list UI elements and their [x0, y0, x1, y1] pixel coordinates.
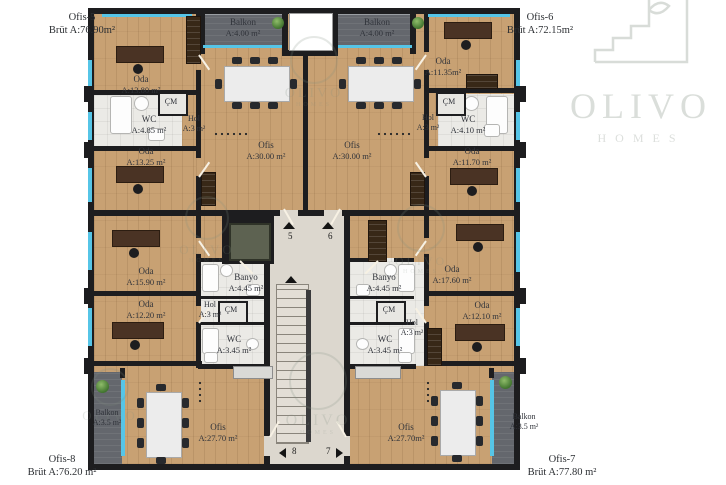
entry-arrow-8 — [279, 448, 286, 458]
room-label-o7-wc: WC A:3.45 m² — [368, 334, 403, 355]
wall — [350, 296, 414, 299]
room-name: Oda — [425, 56, 461, 67]
window — [88, 308, 92, 346]
room-name: Ofis — [199, 422, 238, 433]
kitchen-cabinet — [410, 172, 425, 206]
conference-table — [146, 392, 182, 458]
room-area: A:11.70 m² — [453, 157, 492, 168]
chair — [392, 57, 402, 64]
room-area: A:3.5 m² — [93, 418, 122, 428]
room-area: A:4.10 m² — [451, 125, 486, 136]
shower — [202, 264, 219, 292]
wardrobe — [466, 74, 498, 89]
room-area: A:12.20 m² — [127, 310, 166, 321]
unit-brut-area: Brüt A:76.90m² — [49, 24, 115, 37]
room-area: A:13.80 m² — [122, 85, 161, 96]
chair — [476, 396, 483, 406]
desk — [455, 324, 505, 341]
brand-name: OLIVO — [566, 85, 716, 127]
desk-chair — [467, 186, 477, 196]
stairs-logo-icon — [589, 0, 693, 66]
room-label-o6-oda2: Oda A:11.70 m² — [453, 146, 492, 167]
sink — [464, 96, 479, 111]
pillar — [518, 358, 526, 374]
conference-table — [224, 66, 290, 102]
kitchen-counter — [355, 366, 401, 379]
room-area: A:30.00 m² — [333, 151, 372, 162]
room-name: Banyo — [229, 272, 264, 283]
chair — [268, 57, 278, 64]
room-name: ÇM — [225, 305, 237, 315]
room-area: A:4.00 m² — [360, 28, 395, 39]
watermark-text: OLIVO — [172, 242, 242, 258]
room-name: Oda — [127, 146, 166, 157]
room-name: Ofis — [247, 140, 286, 151]
chair — [476, 416, 483, 426]
window — [203, 45, 282, 48]
entry-number-8: 8 — [292, 446, 297, 456]
chair — [232, 102, 242, 109]
window — [88, 60, 92, 86]
desk-chair — [461, 40, 471, 50]
room-label-o7-balkon: Balkon A:3.5 m² — [510, 412, 539, 431]
entry-arrow-7 — [336, 448, 343, 458]
room-name: Oda — [453, 146, 492, 157]
room-name: Hol — [199, 300, 222, 310]
room-name: Banyo — [367, 272, 402, 283]
room-label-o5-balkon: Balkon A:4.00 m² — [226, 17, 261, 38]
wardrobe — [368, 220, 387, 262]
wall — [88, 361, 202, 366]
room-label-o7-hol: Hol A:3 m² — [401, 318, 424, 337]
window — [516, 308, 520, 346]
chair — [356, 57, 366, 64]
chair — [476, 436, 483, 446]
door-gap — [344, 436, 350, 456]
wardrobe — [427, 328, 442, 366]
room-name: ÇM — [165, 97, 177, 107]
room-area: A:3 m² — [417, 123, 440, 133]
desk-chair — [129, 248, 139, 258]
room-label-o8-oda2: Oda A:12.20 m² — [127, 299, 166, 320]
room-area: A:17.60 m² — [433, 275, 472, 286]
room-label-o6-hol: Hol A:3 m² — [417, 113, 440, 132]
desk-chair — [133, 64, 143, 74]
room-label-o8-ofis: Ofis A:27.70 m² — [199, 422, 238, 443]
window — [102, 14, 192, 17]
window — [516, 112, 520, 140]
room-label-o8-oda1: Oda A:15.90 m² — [127, 266, 166, 287]
floor-plan-canvas: 5 6 8 7 — [0, 0, 726, 485]
room-label-o7-oda1: Oda A:17.60 m² — [433, 264, 472, 285]
watermark-text: OLIVO — [281, 412, 355, 430]
room-name: Ofis — [388, 422, 425, 433]
shower — [110, 96, 132, 134]
room-label-o5-cm: ÇM — [165, 97, 177, 107]
unit-brut-area: Brüt A:72.15m² — [507, 24, 573, 37]
window — [516, 168, 520, 202]
room-name: Oda — [127, 266, 166, 277]
desk-chair — [133, 184, 143, 194]
chair — [156, 457, 166, 464]
chair — [374, 57, 384, 64]
watermark: OLIVO HOMES — [281, 352, 355, 436]
room-name: WC — [451, 114, 486, 125]
room-name: Oda — [433, 264, 472, 275]
unit-label-ofis5: Ofis-5 Brüt A:76.90m² — [49, 11, 115, 37]
plant-icon — [412, 17, 424, 29]
room-area: A:4.45 m² — [229, 283, 264, 294]
room-name: Hol — [417, 113, 440, 123]
brand-logo: OLIVO HOMES — [566, 0, 716, 146]
sliding-track — [376, 131, 412, 136]
room-name: WC — [132, 114, 167, 125]
wall — [200, 296, 264, 299]
chair — [182, 418, 189, 428]
wall — [424, 291, 514, 296]
watermark-text: OLIVO — [283, 86, 345, 102]
room-label-o6-ofis: Ofis A:30.00 m² — [333, 140, 372, 161]
window — [516, 60, 520, 86]
chair — [452, 382, 462, 389]
room-label-o6-oda1: Oda A:11.35m² — [425, 56, 461, 77]
chair — [250, 57, 260, 64]
room-name: WC — [217, 334, 252, 345]
kitchen-counter — [233, 366, 273, 379]
chair — [431, 436, 438, 446]
unit-brut-area: Brüt A:76.20 m² — [28, 466, 97, 479]
stair-direction-arrow — [285, 276, 297, 283]
window — [88, 232, 92, 270]
pillar — [84, 142, 92, 158]
brand-tagline: HOMES — [566, 131, 716, 146]
unit-brut-area: Brüt A:77.80 m² — [528, 466, 597, 479]
room-area: A:12.10 m² — [463, 311, 502, 322]
chair — [215, 79, 222, 89]
room-name: ÇM — [383, 305, 395, 315]
sink — [134, 96, 149, 111]
window — [338, 45, 412, 48]
wall — [489, 368, 494, 378]
unit-name: Ofis-8 — [28, 453, 97, 466]
plant-icon — [272, 17, 284, 29]
room-label-o7-banyo: Banyo A:4.45 m² — [367, 272, 402, 293]
sliding-track — [213, 131, 249, 136]
room-area: A:3 m² — [183, 124, 206, 134]
watermark-circle-icon — [91, 368, 129, 406]
conference-table — [348, 66, 414, 102]
room-label-o8-hol: Hol A:3 m² — [199, 300, 222, 319]
room-area: A:3 m² — [401, 328, 424, 338]
room-label-o8-banyo: Banyo A:4.45 m² — [229, 272, 264, 293]
conference-table — [440, 390, 476, 456]
unit-name: Ofis-5 — [49, 11, 115, 24]
room-name: ÇM — [443, 97, 455, 107]
plant-icon — [499, 376, 512, 389]
unit-label-ofis8: Ofis-8 Brüt A:76.20 m² — [28, 453, 97, 479]
chair — [250, 102, 260, 109]
room-name: Hol — [183, 114, 206, 124]
wall — [88, 291, 200, 296]
sliding-track — [197, 380, 202, 404]
pillar — [518, 86, 526, 102]
pillar — [84, 86, 92, 102]
room-name: Oda — [122, 74, 161, 85]
unit-name: Ofis-6 — [507, 11, 573, 24]
watermark-circle-icon — [185, 196, 229, 240]
unit-label-ofis6: Ofis-6 Brüt A:72.15m² — [507, 11, 573, 37]
watermark: OLIVO HOMES — [283, 36, 345, 108]
window — [88, 168, 92, 202]
room-area: A:3.45 m² — [217, 345, 252, 356]
unit-label-ofis7: Ofis-7 Brüt A:77.80 m² — [528, 453, 597, 479]
room-label-o6-balkon: Balkon A:4.00 m² — [360, 17, 395, 38]
chair — [232, 57, 242, 64]
chair — [452, 455, 462, 462]
desk-chair — [130, 340, 140, 350]
room-label-o5-ofis: Ofis A:30.00 m² — [247, 140, 286, 161]
room-label-o7-oda2: Oda A:12.10 m² — [463, 300, 502, 321]
room-name: Ofis — [333, 140, 372, 151]
watermark-circle-icon — [289, 352, 347, 410]
desk-chair — [473, 242, 483, 252]
room-name: WC — [368, 334, 403, 345]
desk — [456, 224, 504, 241]
toilet — [484, 124, 500, 137]
room-area: A:3.45 m² — [368, 345, 403, 356]
window — [490, 380, 494, 456]
chair — [268, 102, 278, 109]
room-name: Balkon — [360, 17, 395, 28]
room-label-o7-cm: ÇM — [383, 305, 395, 315]
chair — [137, 438, 144, 448]
desk — [450, 168, 498, 185]
room-area: A:27.70m² — [388, 433, 425, 444]
chair — [431, 396, 438, 406]
room-name: Balkon — [226, 17, 261, 28]
watermark-text: HOMES — [172, 258, 242, 264]
room-label-o5-hol: Hol A:3 m² — [183, 114, 206, 133]
chair — [182, 438, 189, 448]
watermark-circle-icon — [290, 36, 338, 84]
chair — [392, 102, 402, 109]
room-area: A:27.70 m² — [199, 433, 238, 444]
wall — [88, 210, 520, 216]
unit-name: Ofis-7 — [528, 453, 597, 466]
room-area: A:30.00 m² — [247, 151, 286, 162]
room-name: Balkon — [93, 408, 122, 418]
wall — [88, 464, 520, 470]
room-area: A:4.85 m² — [132, 125, 167, 136]
chair — [414, 79, 421, 89]
watermark-text: HOMES — [281, 430, 355, 436]
chair — [374, 102, 384, 109]
watermark: OLIVO HOMES — [172, 196, 242, 264]
window — [88, 112, 92, 140]
room-label-o5-oda2: Oda A:13.25 m² — [127, 146, 166, 167]
pillar — [518, 288, 526, 304]
room-label-o8-balkon: Balkon A:3.5 m² — [93, 408, 122, 427]
desk — [112, 230, 160, 247]
room-area: A:4.45 m² — [367, 283, 402, 294]
room-area: A:4.00 m² — [226, 28, 261, 39]
room-label-o8-wc: WC A:3.45 m² — [217, 334, 252, 355]
desk — [444, 22, 492, 39]
entry-number-6: 6 — [328, 231, 333, 241]
room-area: A:3 m² — [199, 310, 222, 320]
watermark-text: HOMES — [283, 102, 345, 108]
room-name: Balkon — [510, 412, 539, 422]
chair — [431, 416, 438, 426]
room-label-o5-oda1: Oda A:13.80 m² — [122, 74, 161, 95]
room-name: Oda — [127, 299, 166, 310]
room-label-o7-ofis: Ofis A:27.70m² — [388, 422, 425, 443]
room-label-o8-cm: ÇM — [225, 305, 237, 315]
room-area: A:3.5 m² — [510, 422, 539, 432]
room-name: Hol — [401, 318, 424, 328]
watermark-circle-icon — [397, 204, 445, 252]
window — [428, 14, 510, 17]
desk — [116, 46, 164, 63]
room-area: A:15.90 m² — [127, 277, 166, 288]
room-label-o6-cm: ÇM — [443, 97, 455, 107]
desk — [112, 322, 164, 339]
desk — [116, 166, 164, 183]
room-area: A:11.35m² — [425, 67, 461, 78]
room-area: A:13.25 m² — [127, 157, 166, 168]
chair — [156, 384, 166, 391]
room-label-o6-wc: WC A:4.10 m² — [451, 114, 486, 135]
room-name: Oda — [463, 300, 502, 311]
sliding-track — [425, 380, 430, 404]
desk-chair — [472, 342, 482, 352]
door-gap — [264, 436, 270, 456]
chair — [182, 398, 189, 408]
entry-number-7: 7 — [326, 446, 331, 456]
room-label-o5-wc: WC A:4.85 m² — [132, 114, 167, 135]
chair — [356, 102, 366, 109]
window — [516, 232, 520, 272]
entry-number-5: 5 — [288, 231, 293, 241]
pillar — [518, 142, 526, 158]
